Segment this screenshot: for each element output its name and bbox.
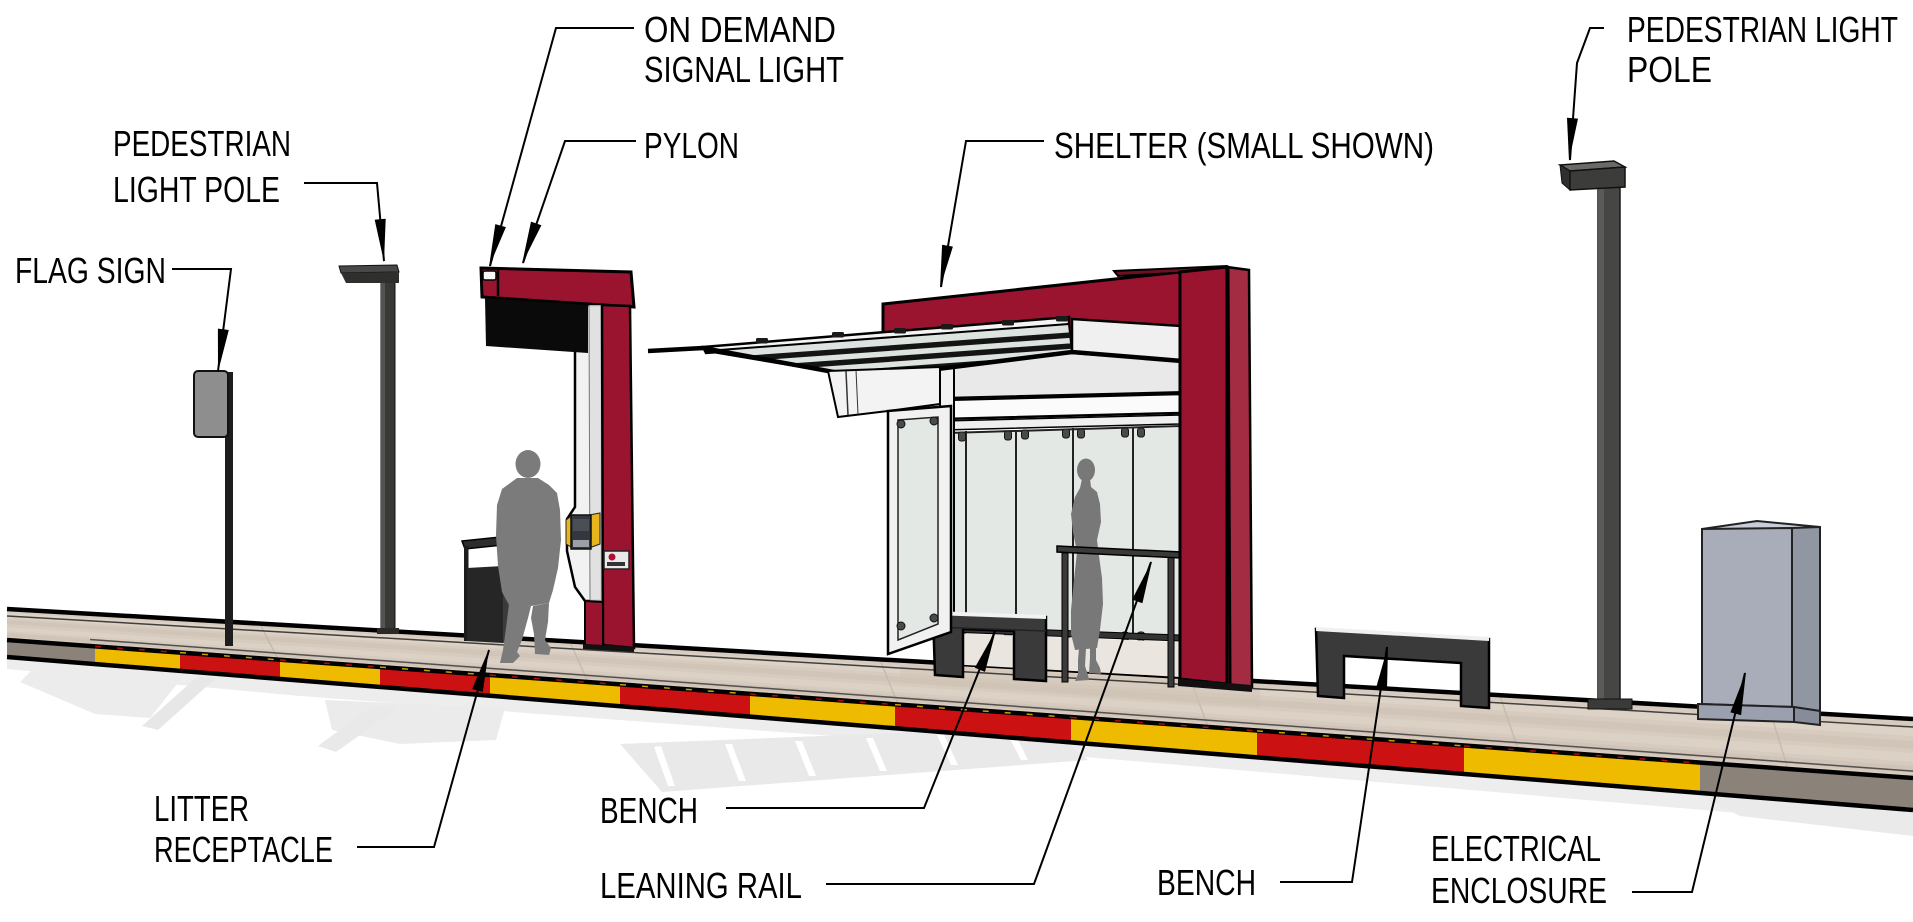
svg-text:ENCLOSURE: ENCLOSURE <box>1431 870 1607 911</box>
svg-text:PEDESTRIAN: PEDESTRIAN <box>113 123 291 164</box>
svg-text:SHELTER (SMALL SHOWN): SHELTER (SMALL SHOWN) <box>1054 125 1434 166</box>
svg-text:ON DEMAND: ON DEMAND <box>644 9 836 50</box>
svg-text:PYLON: PYLON <box>644 125 739 166</box>
svg-text:LEANING RAIL: LEANING RAIL <box>600 865 802 906</box>
svg-text:BENCH: BENCH <box>600 790 698 831</box>
svg-text:LIGHT POLE: LIGHT POLE <box>113 169 280 210</box>
svg-text:PEDESTRIAN LIGHT: PEDESTRIAN LIGHT <box>1627 9 1898 50</box>
svg-text:LITTER: LITTER <box>154 788 249 829</box>
svg-text:RECEPTACLE: RECEPTACLE <box>154 829 333 870</box>
svg-text:FLAG SIGN: FLAG SIGN <box>15 250 166 291</box>
svg-text:POLE: POLE <box>1627 49 1712 90</box>
svg-text:BENCH: BENCH <box>1157 862 1256 903</box>
svg-text:SIGNAL LIGHT: SIGNAL LIGHT <box>644 49 844 90</box>
svg-text:ELECTRICAL: ELECTRICAL <box>1431 828 1601 869</box>
